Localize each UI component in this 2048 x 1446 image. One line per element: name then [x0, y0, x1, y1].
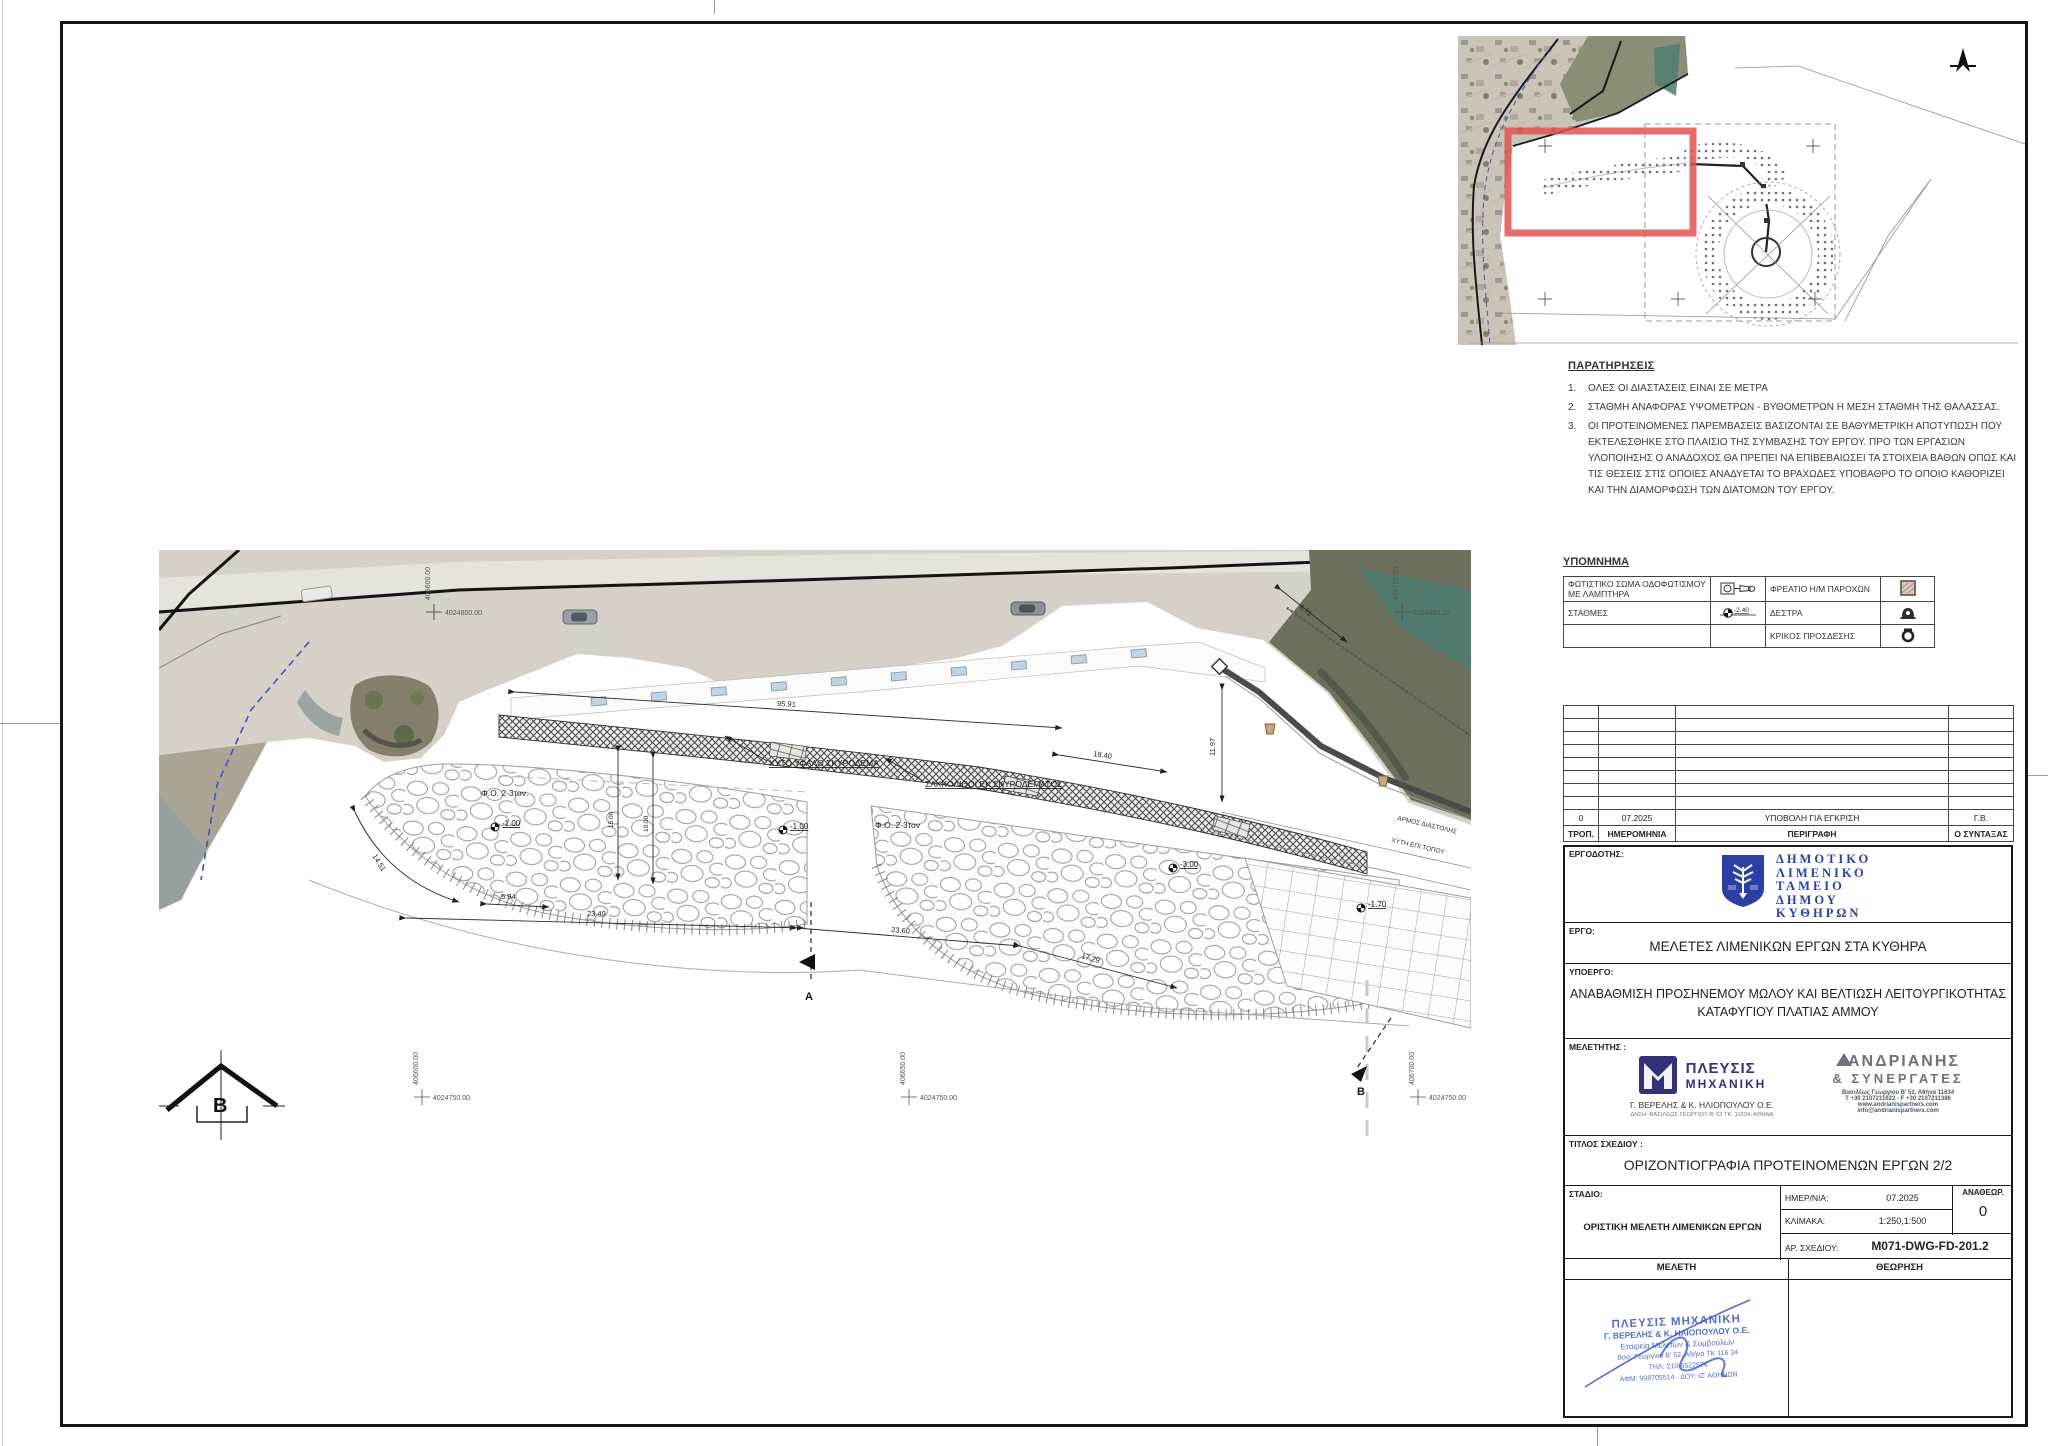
revision-value: 0 — [1955, 1203, 2011, 1220]
svg-text:95.91: 95.91 — [777, 699, 796, 709]
svg-text:23.60: 23.60 — [891, 925, 910, 936]
revision-header-row: ΤΡΟΠ. ΗΜΕΡΟΜΗΝΙΑ ΠΕΡΙΓΡΑΦΗ Ο ΣΥΝΤΑΞΑΣ — [1564, 826, 2014, 842]
legend-label: ΔΕΣΤΡΑ — [1766, 602, 1881, 625]
svg-text:406600.00: 406600.00 — [425, 567, 432, 600]
svg-text:Φ.Ο. 2-3τον.: Φ.Ο. 2-3τον. — [481, 788, 528, 798]
svg-text:-1.00: -1.00 — [790, 822, 809, 831]
level-symbol-icon: -2.40 — [1711, 602, 1766, 625]
subproject-title-2: ΚΑΤΑΦΥΓΙΟΥ ΠΛΑΤΙΑΣ ΑΜΜΟΥ — [1565, 1005, 2011, 1019]
svg-text:A: A — [805, 991, 813, 1003]
drawing-title: ΟΡΙΖΟΝΤΙΟΓΡΑΦΙΑ ΠΡΟΤΕΙΝΟΜΕΝΩΝ ΕΡΓΩΝ 2/2 — [1565, 1157, 2011, 1173]
svg-text:11.97: 11.97 — [1208, 738, 1217, 756]
svg-text:406600.00: 406600.00 — [413, 1052, 420, 1085]
legend-label-empty — [1564, 625, 1711, 648]
revision-description: ΥΠΟΒΟΛΗ ΓΙΑ ΕΓΚΡΙΣΗ — [1676, 810, 1949, 826]
meleti-header: ΜΕΛΕΤΗ — [1565, 1262, 1788, 1273]
drawing-number: M071-DWG-FD-201.2 — [1855, 1239, 2005, 1253]
svg-text:406700.00: 406700.00 — [1393, 567, 1400, 600]
svg-text:B: B — [213, 1095, 227, 1117]
designer-label: ΜΕΛΕΤΗΤΗΣ : — [1569, 1042, 1626, 1052]
legend-label: ΚΡΙΚΟΣ ΠΡΟΣΔΕΣΗΣ — [1766, 625, 1881, 648]
legend-symbol-empty — [1711, 625, 1766, 648]
title-block: ΕΡΓΟΔΟΤΗΣ: ΔΗΜΟΤΙΚΟ ΛΙΜΕΝΙΚΟ ΤΑΜΕΙΟ ΔΗΜΟ… — [1563, 845, 2013, 1418]
svg-text:4024750.00: 4024750.00 — [920, 1095, 957, 1102]
main-plan-drawing: ΑΡΜΟΣ ΔΙΑΣΤΟΛΗΣ ΧΥΤΗ ΕΠΙ ΤΟΠΟΥ 95.91 23.… — [159, 550, 1471, 1140]
fold-mark-top — [714, 0, 715, 14]
scale-value: 1:250,1:500 — [1855, 1216, 1950, 1226]
svg-text:15.00: 15.00 — [608, 811, 615, 828]
stage-label: ΣΤΑΔΙΟ: — [1569, 1189, 1603, 1199]
svg-text:4024750.00: 4024750.00 — [433, 1095, 470, 1102]
legend-label: ΦΩΤΙΣΤΙΚΟ ΣΩΜΑ ΟΔΟΦΩΤΙΣΜΟΥ ΜΕ ΛΑΜΠΤΗΡΑ — [1564, 577, 1711, 602]
notes-title: ΠΑΡΑΤΗΡΗΣΕΙΣ — [1568, 360, 2020, 372]
svg-text:4024750.00: 4024750.00 — [1429, 1095, 1466, 1102]
revision-row: 0 07.2025 ΥΠΟΒΟΛΗ ΓΙΑ ΕΓΚΡΙΣΗ Γ.Β. — [1564, 810, 2014, 826]
svg-text:23.49: 23.49 — [587, 909, 606, 918]
bollard-legend-icon — [1881, 602, 1935, 625]
svg-text:B: B — [1357, 1086, 1365, 1098]
subproject-title: ΑΝΑΒΑΘΜΙΣΗ ΠΡΟΣΗΝΕΜΟΥ ΜΩΛΟΥ ΚΑΙ ΒΕΛΤΙΩΣΗ… — [1565, 987, 2011, 1001]
drawing-title-label: ΤΙΤΛΟΣ ΣΧΕΔΙΟΥ : — [1569, 1139, 1643, 1149]
svg-text:406650.00: 406650.00 — [900, 1052, 907, 1085]
note-item: 3. ΟΙ ΠΡΟΤΕΙΝΟΜΕΝΕΣ ΠΑΡΕΜΒΑΣΕΙΣ ΒΑΣΙΖΟΝΤ… — [1568, 419, 2020, 499]
svg-text:ΣΑΚΚΟΛΙΘΟΙ ΕΚ ΣΚΥΡΟΔΕΜΑΤΟΣ: ΣΑΚΚΟΛΙΘΟΙ ΕΚ ΣΚΥΡΟΔΕΜΑΤΟΣ — [925, 779, 1062, 789]
fold-mark-left — [0, 723, 60, 724]
svg-text:Φ.Ο. 2-3τον: Φ.Ο. 2-3τον — [875, 820, 920, 830]
stage-value: ΟΡΙΣΤΙΚΗ ΜΕΛΕΤΗ ΛΙΜΕΝΙΚΩΝ ΕΡΓΩΝ — [1565, 1222, 1780, 1233]
plefsis-company: Γ. ΒΕΡΕΛΗΣ & Κ. ΗΛΙΟΠΟΥΛΟΥ Ο.Ε. — [1617, 1100, 1787, 1110]
project-title: ΜΕΛΕΤΕΣ ΛΙΜΕΝΙΚΩΝ ΕΡΓΩΝ ΣΤΑ ΚΥΘΗΡΑ — [1565, 939, 2011, 954]
scale-label: ΚΛΙΜΑΚΑ: — [1785, 1216, 1825, 1226]
note-item: 2. ΣΤΑΘΜΗ ΑΝΑΦΟΡΑΣ ΥΨΟΜΕΤΡΩΝ - ΒΥΘΟΜΕΤΡΩ… — [1568, 400, 2020, 416]
svg-text:-2.40: -2.40 — [1734, 607, 1749, 614]
fold-mark-right — [2025, 775, 2048, 776]
plefsis-address: ΔΝΣΗ: ΒΑΣΙΛΕΩΣ ΓΕΩΡΓΙΟΥ Β' 52 ΤΚ: 11634,… — [1617, 1112, 1787, 1118]
date-value: 07.2025 — [1855, 1193, 1950, 1203]
svg-text:4024800.00: 4024800.00 — [445, 610, 482, 617]
andrianis-logo: ΑΝΔΡΙΑΝΗΣ & ΣΥΝΕΡΓΑΤΕΣ Βασιλέως Γεωργίου… — [1803, 1053, 1993, 1114]
revision-date: 07.2025 — [1599, 810, 1676, 826]
plefsis-logo-mark — [1638, 1055, 1678, 1095]
project-label: ΕΡΓΟ: — [1569, 926, 1595, 936]
streetlight-icon — [1711, 577, 1766, 602]
legend-section: ΥΠΟΜΝΗΜΑ ΦΩΤΙΣΤΙΚΟ ΣΩΜΑ ΟΔΟΦΩΤΙΣΜΟΥ ΜΕ Λ… — [1563, 556, 1935, 648]
revision-number: 0 — [1564, 810, 1599, 826]
svg-text:-1.00: -1.00 — [502, 819, 521, 828]
svg-text:5.94: 5.94 — [501, 892, 516, 901]
revision-label: ΑΝΑΘΕΩΡ. — [1955, 1188, 2011, 1197]
legend-table: ΦΩΤΙΣΤΙΚΟ ΣΩΜΑ ΟΔΟΦΩΤΙΣΜΟΥ ΜΕ ΛΑΜΠΤΗΡΑ Φ… — [1563, 576, 1935, 648]
fold-mark-bottom — [1597, 1424, 1598, 1446]
drawing-sheet: ΑΡΜΟΣ ΔΙΑΣΤΟΛΗΣ ΧΥΤΗ ΕΠΙ ΤΟΠΟΥ 95.91 23.… — [0, 0, 2048, 1446]
svg-text:4024800.00: 4024800.00 — [1413, 610, 1450, 617]
employer-label: ΕΡΓΟΔΟΤΗΣ: — [1569, 849, 1624, 859]
utility-pit-icon — [1881, 577, 1935, 602]
legend-title: ΥΠΟΜΝΗΜΑ — [1563, 556, 1935, 568]
svg-text:-1.70: -1.70 — [1368, 900, 1387, 909]
signature-icon — [1565, 1282, 1788, 1416]
employer-name: ΔΗΜΟΤΙΚΟ ΛΙΜΕΝΙΚΟ ΤΑΜΕΙΟ ΔΗΜΟΥ ΚΥΘΗΡΩΝ — [1776, 853, 1871, 921]
mooring-ring-icon — [1881, 625, 1935, 648]
date-label: ΗΜΕΡ/ΝΙΑ: — [1785, 1193, 1828, 1203]
overview-key-map — [1458, 36, 2025, 345]
revision-author: Γ.Β. — [1949, 810, 2014, 826]
plefsis-logo: ΠΛΕΥΣΙΣ ΜΗΧΑΝΙΚΗ Γ. ΒΕΡΕΛΗΣ & Κ. ΗΛΙΟΠΟΥ… — [1617, 1055, 1787, 1118]
svg-text:ΧΥΤΟ ΥΦΑΛΟ ΣΚΥΡΟΔΕΜΑ: ΧΥΤΟ ΥΦΑΛΟ ΣΚΥΡΟΔΕΜΑ — [769, 758, 879, 768]
car-icon — [563, 610, 597, 624]
legend-label: ΣΤΑΘΜΕΣ — [1564, 602, 1711, 625]
car-icon — [1011, 602, 1045, 615]
drawing-number-label: ΑΡ. ΣΧΕΔΙΟΥ: — [1785, 1243, 1839, 1253]
revision-table: 0 07.2025 ΥΠΟΒΟΛΗ ΓΙΑ ΕΓΚΡΙΣΗ Γ.Β. ΤΡΟΠ.… — [1563, 705, 2014, 842]
legend-label: ΦΡΕΑΤΙΟ Η/Μ ΠΑΡΟΧΩΝ — [1766, 577, 1881, 602]
svg-text:10.00: 10.00 — [643, 815, 650, 832]
svg-text:-3.00: -3.00 — [1180, 860, 1199, 869]
employer-identity: ΔΗΜΟΤΙΚΟ ΛΙΜΕΝΙΚΟ ΤΑΜΕΙΟ ΔΗΜΟΥ ΚΥΘΗΡΩΝ — [1720, 853, 1871, 921]
theorisi-header: ΘΕΩΡΗΣΗ — [1788, 1262, 2011, 1273]
notes-section: ΠΑΡΑΤΗΡΗΣΕΙΣ 1. ΟΛΕΣ ΟΙ ΔΙΑΣΤΑΣΕΙΣ ΕΙΝΑΙ… — [1568, 360, 2020, 499]
port-fund-logo — [1720, 853, 1766, 909]
subproject-label: ΥΠΟΕΡΓΟ: — [1569, 967, 1613, 977]
svg-text:406700.00: 406700.00 — [1409, 1052, 1416, 1085]
note-item: 1. ΟΛΕΣ ΟΙ ΔΙΑΣΤΑΣΕΙΣ ΕΙΝΑΙ ΣΕ ΜΕΤΡΑ — [1568, 381, 2020, 397]
